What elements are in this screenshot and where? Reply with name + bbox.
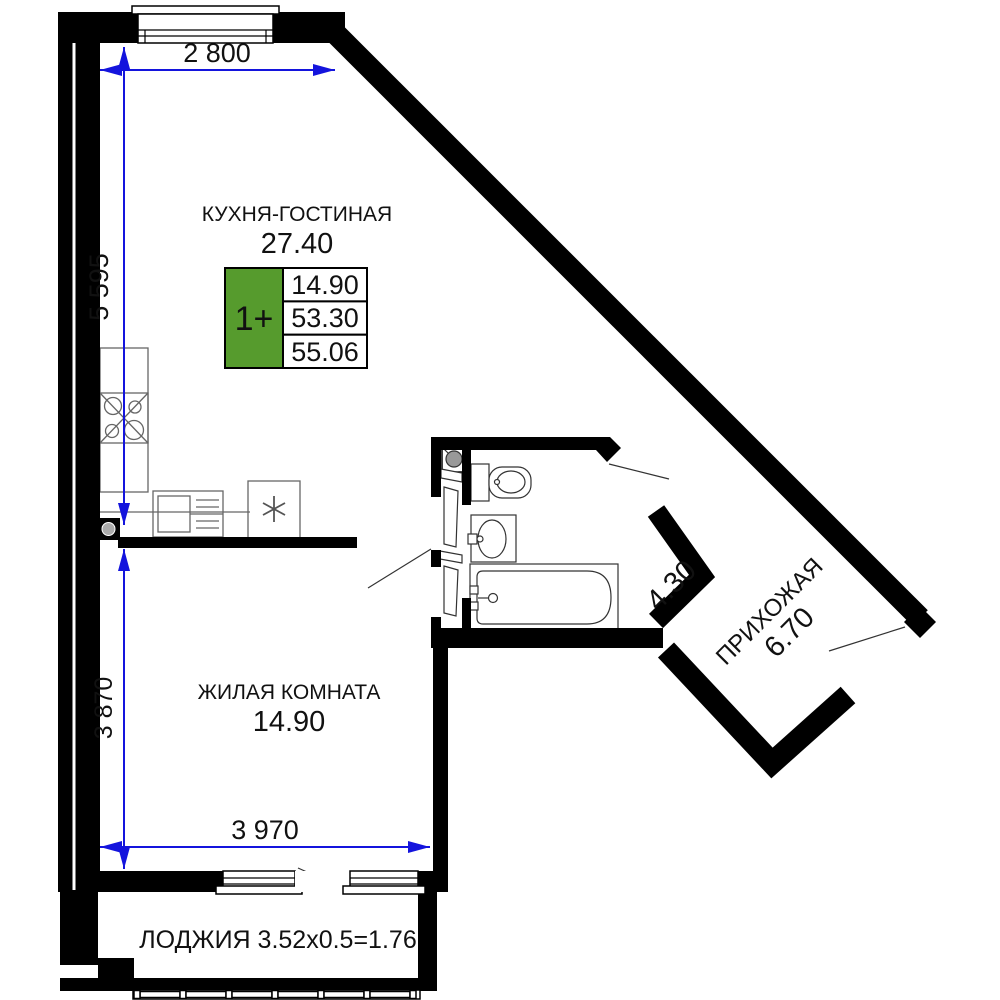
pipe-icon [102, 523, 115, 536]
entrance-door-leader [829, 627, 905, 651]
diagonal-outer-wall [330, 28, 920, 618]
loggia-label: ЛОДЖИЯ 3.52x0.5=1.76 [139, 926, 416, 954]
kitchen-sink [153, 491, 223, 537]
dim-left-lower: 3 870 [90, 677, 118, 740]
badge-living-area: 14.90 [291, 270, 359, 300]
dimension-lines [100, 47, 430, 869]
loggia-east-wall [418, 892, 437, 991]
loggia-west-wall [60, 892, 98, 965]
living-room-area: 14.90 [253, 706, 326, 738]
bathroom-bottom-wall [431, 628, 663, 648]
living-room-south-wall [98, 871, 223, 892]
washbasin [468, 515, 516, 562]
toilet [471, 464, 531, 501]
wall-seam [73, 12, 76, 890]
door-leaves [440, 469, 462, 616]
bathroom-inner-wall-a [462, 437, 471, 505]
dim-left-upper: 5 595 [84, 253, 114, 321]
living-room-window-left [216, 871, 302, 894]
kitchen-living-name: КУХНЯ-ГОСТИНАЯ [202, 203, 392, 226]
bathroom-door-swing [609, 464, 669, 479]
living-room-name: ЖИЛАЯ КОМНАТА [198, 681, 381, 704]
balcony-door-opening [295, 871, 350, 892]
hallway-south-wall [666, 650, 848, 763]
left-outer-wall [58, 12, 100, 892]
floor-plan-page: 1+ 14.90 53.30 55.06 КУХНЯ-ГОСТИНАЯ 27.4… [0, 0, 1000, 1000]
kitchen-living-partition [118, 537, 357, 548]
dim-top: 2 800 [183, 38, 251, 68]
top-wall-left [58, 12, 138, 43]
kitchen-living-area: 27.40 [261, 228, 334, 260]
bathroom-top-wall [433, 437, 598, 450]
bathroom-top-wall-end [596, 437, 621, 462]
badge-type: 1+ [235, 300, 274, 338]
dim-bottom: 3 970 [231, 815, 299, 845]
fridge [248, 481, 300, 538]
bathroom-door-leader [368, 549, 431, 588]
living-room-east-wall [433, 648, 448, 878]
bathroom-west-wall-a [431, 437, 441, 497]
badge-total-area: 55.06 [291, 337, 359, 367]
floor-plan-drawing: 1+ 14.90 53.30 55.06 КУХНЯ-ГОСТИНАЯ 27.4… [0, 0, 1000, 1000]
apartment-info-badge: 1+ 14.90 53.30 55.06 [225, 268, 367, 368]
bathroom-west-wall-b [431, 550, 441, 567]
bathtub [470, 564, 618, 631]
openings [132, 6, 425, 999]
living-room-window-right [343, 871, 425, 894]
badge-apartment-area: 53.30 [291, 303, 359, 333]
loggia-glazing [133, 990, 420, 999]
kitchen-fixtures [100, 348, 300, 538]
loggia-south-band [60, 978, 437, 991]
